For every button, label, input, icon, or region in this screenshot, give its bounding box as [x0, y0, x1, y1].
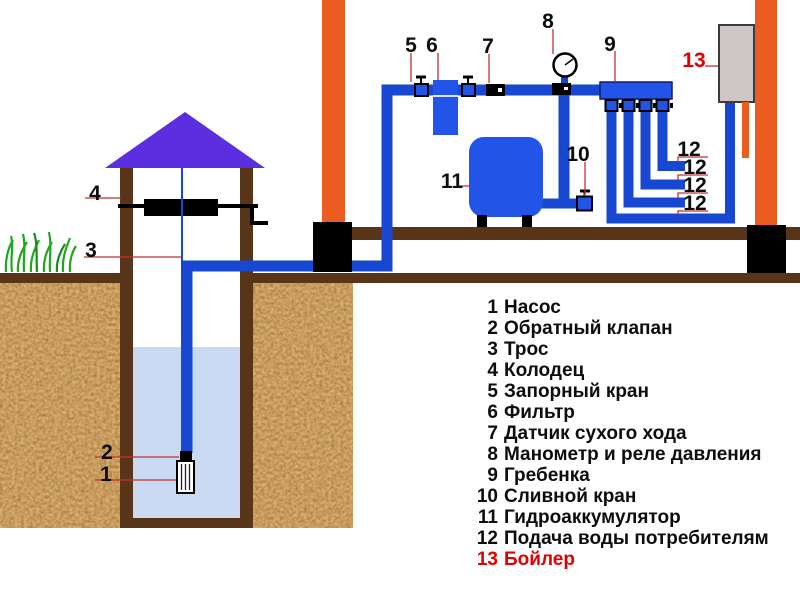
- well-roof: [105, 112, 265, 168]
- legend-item: 6Фильтр: [470, 402, 769, 423]
- legend-item: 9Гребенка: [470, 465, 769, 486]
- boiler: [719, 25, 754, 102]
- legend-item: 12Подача воды потребителям: [470, 528, 769, 549]
- filter: [433, 80, 458, 135]
- valve-after-filter: [462, 77, 475, 96]
- legend-item: 11Гидроаккумулятор: [470, 507, 769, 528]
- winch-crank: [252, 206, 268, 223]
- column-right: [755, 0, 777, 225]
- footing-left: [313, 222, 352, 272]
- callout-2: 2: [101, 441, 113, 464]
- callout-8: 8: [542, 10, 554, 33]
- shutoff-valve: [415, 77, 428, 96]
- footing-right: [747, 225, 786, 273]
- callout-3: 3: [85, 239, 97, 262]
- well-wall-left: [120, 168, 133, 528]
- manifold: [600, 82, 673, 111]
- callout-10: 10: [566, 143, 589, 166]
- legend-item: 4Колодец: [470, 360, 769, 381]
- relay-dot: [564, 87, 568, 90]
- column-left: [322, 0, 345, 222]
- legend-item: 5Запорный кран: [470, 381, 769, 402]
- check-valve: [180, 451, 192, 462]
- hydroaccumulator: [469, 137, 543, 227]
- callout-5: 5: [405, 34, 417, 57]
- callout-7: 7: [482, 35, 494, 58]
- callout-6: 6: [426, 34, 438, 57]
- well-floor: [120, 518, 253, 528]
- callout-12d: 12: [683, 192, 706, 215]
- legend-item: 10Сливной кран: [470, 486, 769, 507]
- legend-item: 2Обратный клапан: [470, 318, 769, 339]
- callout-4: 4: [89, 182, 101, 205]
- legend-item-boiler: 13Бойлер: [470, 549, 769, 570]
- callout-11: 11: [441, 170, 464, 193]
- callout-9: 9: [604, 33, 616, 56]
- manifold-valves: [606, 100, 674, 111]
- legend-item: 3Трос: [470, 339, 769, 360]
- legend-item: 8Манометр и реле давления: [470, 444, 769, 465]
- callout-1: 1: [100, 463, 112, 486]
- grass: [6, 232, 76, 272]
- legend-item: 7Датчик сухого хода: [470, 423, 769, 444]
- diagram-canvas: 1 2 3 4 5 6 7 8 9 10 11 12 12 12 12 13 1…: [0, 0, 800, 600]
- boiler-element: [742, 102, 749, 158]
- legend: 1Насос 2Обратный клапан 3Трос 4Колодец 5…: [470, 297, 769, 570]
- pressure-relay: [552, 83, 571, 95]
- dry-run-sensor: [486, 84, 505, 96]
- legend-item: 1Насос: [470, 297, 769, 318]
- callout-13: 13: [682, 49, 705, 72]
